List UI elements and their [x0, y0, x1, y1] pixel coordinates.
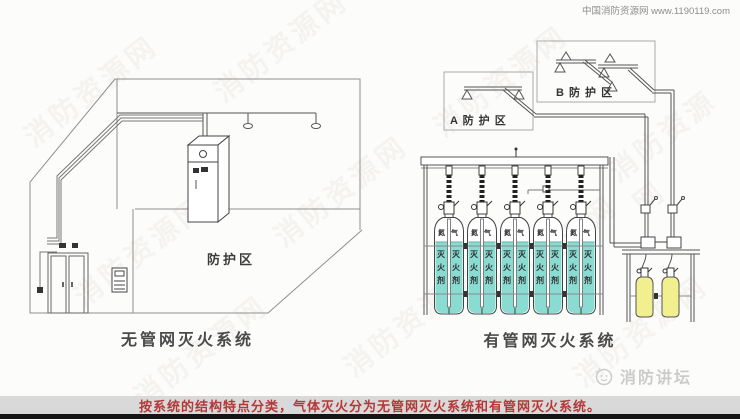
agent-label: 灭火剂 [536, 248, 545, 287]
agent-label: 灭火剂 [452, 248, 461, 287]
alarm-strobe-icon [72, 243, 78, 248]
agent-cylinder-3 [501, 166, 530, 314]
pilot-gas-line [528, 186, 600, 194]
bottom-black-strip [0, 414, 740, 419]
forum-logo: 消防讲坛 [593, 364, 692, 388]
nitrogen-label: 氮气 [537, 228, 563, 238]
nozzle-icon [462, 90, 472, 99]
nozzle-icon [605, 54, 615, 62]
manual-call-point-icon [37, 287, 43, 293]
nitrogen-label: 氮气 [504, 228, 530, 238]
nitrogen-label: 氮气 [471, 228, 497, 238]
zone-b-label: B 防 护 区 [556, 84, 613, 100]
footer-caption-bar: 按系统的结构特点分类，气体灭火分为无管网灭火系统和有管网灭火系统。 [0, 396, 740, 414]
site-credit: 中国消防资源网 www.1190119.com [555, 3, 730, 17]
footer-caption-text: 按系统的结构特点分类，气体灭火分为无管网灭火系统和有管网灭火系统。 [139, 396, 601, 415]
nitrogen-label: 氮气 [438, 228, 464, 238]
agent-cylinder-2 [468, 166, 497, 314]
left-system-caption: 无管网灭火系统 [95, 326, 280, 350]
manifold-to-pilot-pipe [610, 157, 641, 247]
diagram-artwork [0, 0, 740, 419]
agent-label: 灭火剂 [503, 248, 512, 287]
nitrogen-label: 氮气 [570, 228, 596, 238]
agent-label: 灭火剂 [437, 248, 446, 287]
cabinet-label-marks [193, 168, 199, 173]
collecting-pipe [421, 157, 608, 165]
check-valve [667, 237, 681, 248]
screenshot-canvas: 消防资源网 消防资源网 消防资源网 消防资源网 消防资源网 消防资源网 消防资源… [0, 0, 740, 419]
forum-logo-text: 消防讲坛 [620, 364, 692, 388]
extinguishing-cabinet [188, 136, 229, 222]
gas-control-panel [112, 268, 127, 292]
cabinet-riser-pipe [203, 113, 207, 136]
agent-cylinder-5 [567, 166, 596, 314]
forum-face-icon [593, 365, 615, 387]
smoke-detector-icon [244, 124, 253, 129]
pilot-cylinder-2 [662, 268, 679, 317]
agent-label: 灭火剂 [518, 248, 527, 287]
smoke-detector-icon [312, 124, 321, 129]
pilot-station [622, 237, 700, 322]
cabinet-indicator-icon [200, 151, 207, 158]
cabinet-label-marks [201, 167, 208, 172]
agent-label: 灭火剂 [584, 248, 593, 287]
agent-label: 灭火剂 [551, 248, 560, 287]
double-door [48, 253, 88, 313]
agent-label: 灭火剂 [485, 248, 494, 287]
right-system-caption: 有管网灭火系统 [455, 327, 645, 351]
alarm-sounder-icon [59, 243, 66, 248]
nozzle-icon [561, 52, 571, 60]
zone-a-label: A 防 护 区 [450, 112, 507, 128]
nozzle-icon [555, 63, 565, 72]
protection-zone-label: 防护区 [207, 249, 255, 268]
agent-label: 灭火剂 [569, 248, 578, 287]
agent-cylinder-1 [435, 166, 464, 314]
nozzle-icon [514, 90, 524, 99]
check-valve [641, 237, 655, 248]
pilot-cylinder-1 [636, 268, 653, 317]
agent-label: 灭火剂 [470, 248, 479, 287]
